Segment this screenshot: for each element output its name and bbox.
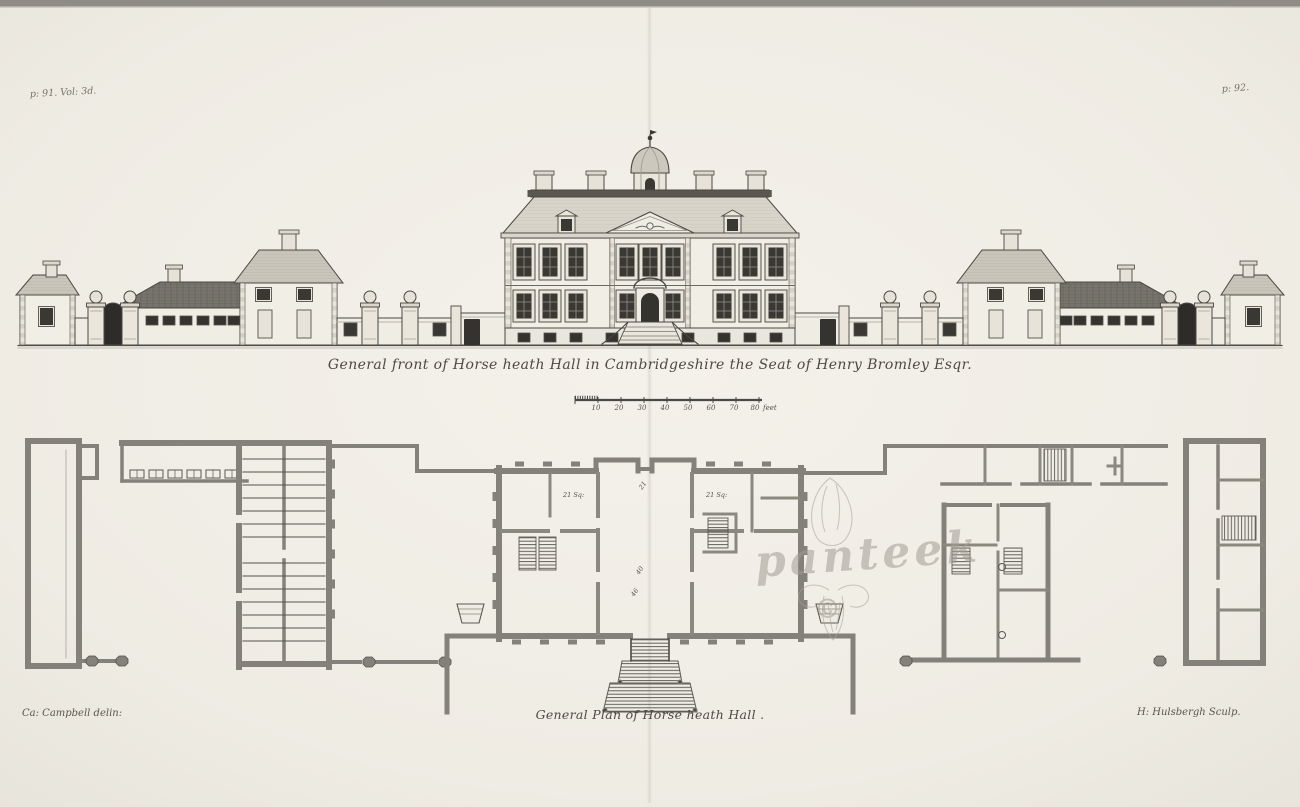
projection-quoins	[686, 238, 691, 330]
chimney-cap	[586, 171, 606, 175]
stair-kitchen-wing	[1044, 449, 1066, 481]
room-label-left: 21 Sq:	[562, 491, 584, 499]
engraving-canvas: General front of Horse heath Hall in Cam…	[0, 0, 1300, 807]
watermark-copyright: ©	[814, 594, 845, 625]
chimney-cap	[746, 171, 766, 175]
plan-caption: General Plan of Horse heath Hall .	[536, 707, 765, 722]
scale-tick-50: 50	[684, 404, 693, 412]
page-ref-right: p: 92.	[1221, 82, 1249, 95]
corner-quoins	[505, 238, 511, 330]
delineator-credit: Ca: Campbell delin:	[22, 708, 122, 719]
chimney-cap	[694, 171, 714, 175]
elevation-caption: General front of Horse heath Hall in Cam…	[328, 357, 972, 373]
stair-left	[539, 537, 556, 570]
stair-right	[708, 518, 728, 548]
main-cornice	[501, 233, 799, 238]
stair-service	[1004, 548, 1022, 574]
scale-tick-60: 60	[707, 404, 716, 412]
scale-tick-40: 40	[660, 404, 670, 412]
corner-quoins	[789, 238, 795, 330]
room-label-right: 21 Sq:	[705, 491, 727, 499]
photo-top-edge-highlight	[0, 6, 1300, 8]
chimney-cap	[534, 171, 554, 175]
photo-top-edge	[0, 0, 1300, 6]
engraver-credit: H: Hulsbergh Sculp.	[1136, 707, 1241, 718]
scale-tick-80: 80	[751, 404, 760, 412]
engraved-plate: General front of Horse heath Hall in Cam…	[0, 0, 1300, 807]
roof-balustrade	[531, 190, 769, 197]
scale-tick-70: 70	[730, 404, 739, 412]
stair-left	[519, 537, 536, 570]
scale-unit-label: feet	[762, 404, 777, 412]
scale-tick-20: 20	[614, 404, 624, 412]
scale-tick-10: 10	[592, 404, 601, 412]
stair-right-range	[1222, 516, 1256, 540]
scale-tick-30: 30	[638, 404, 647, 412]
projection-quoins	[610, 238, 615, 330]
